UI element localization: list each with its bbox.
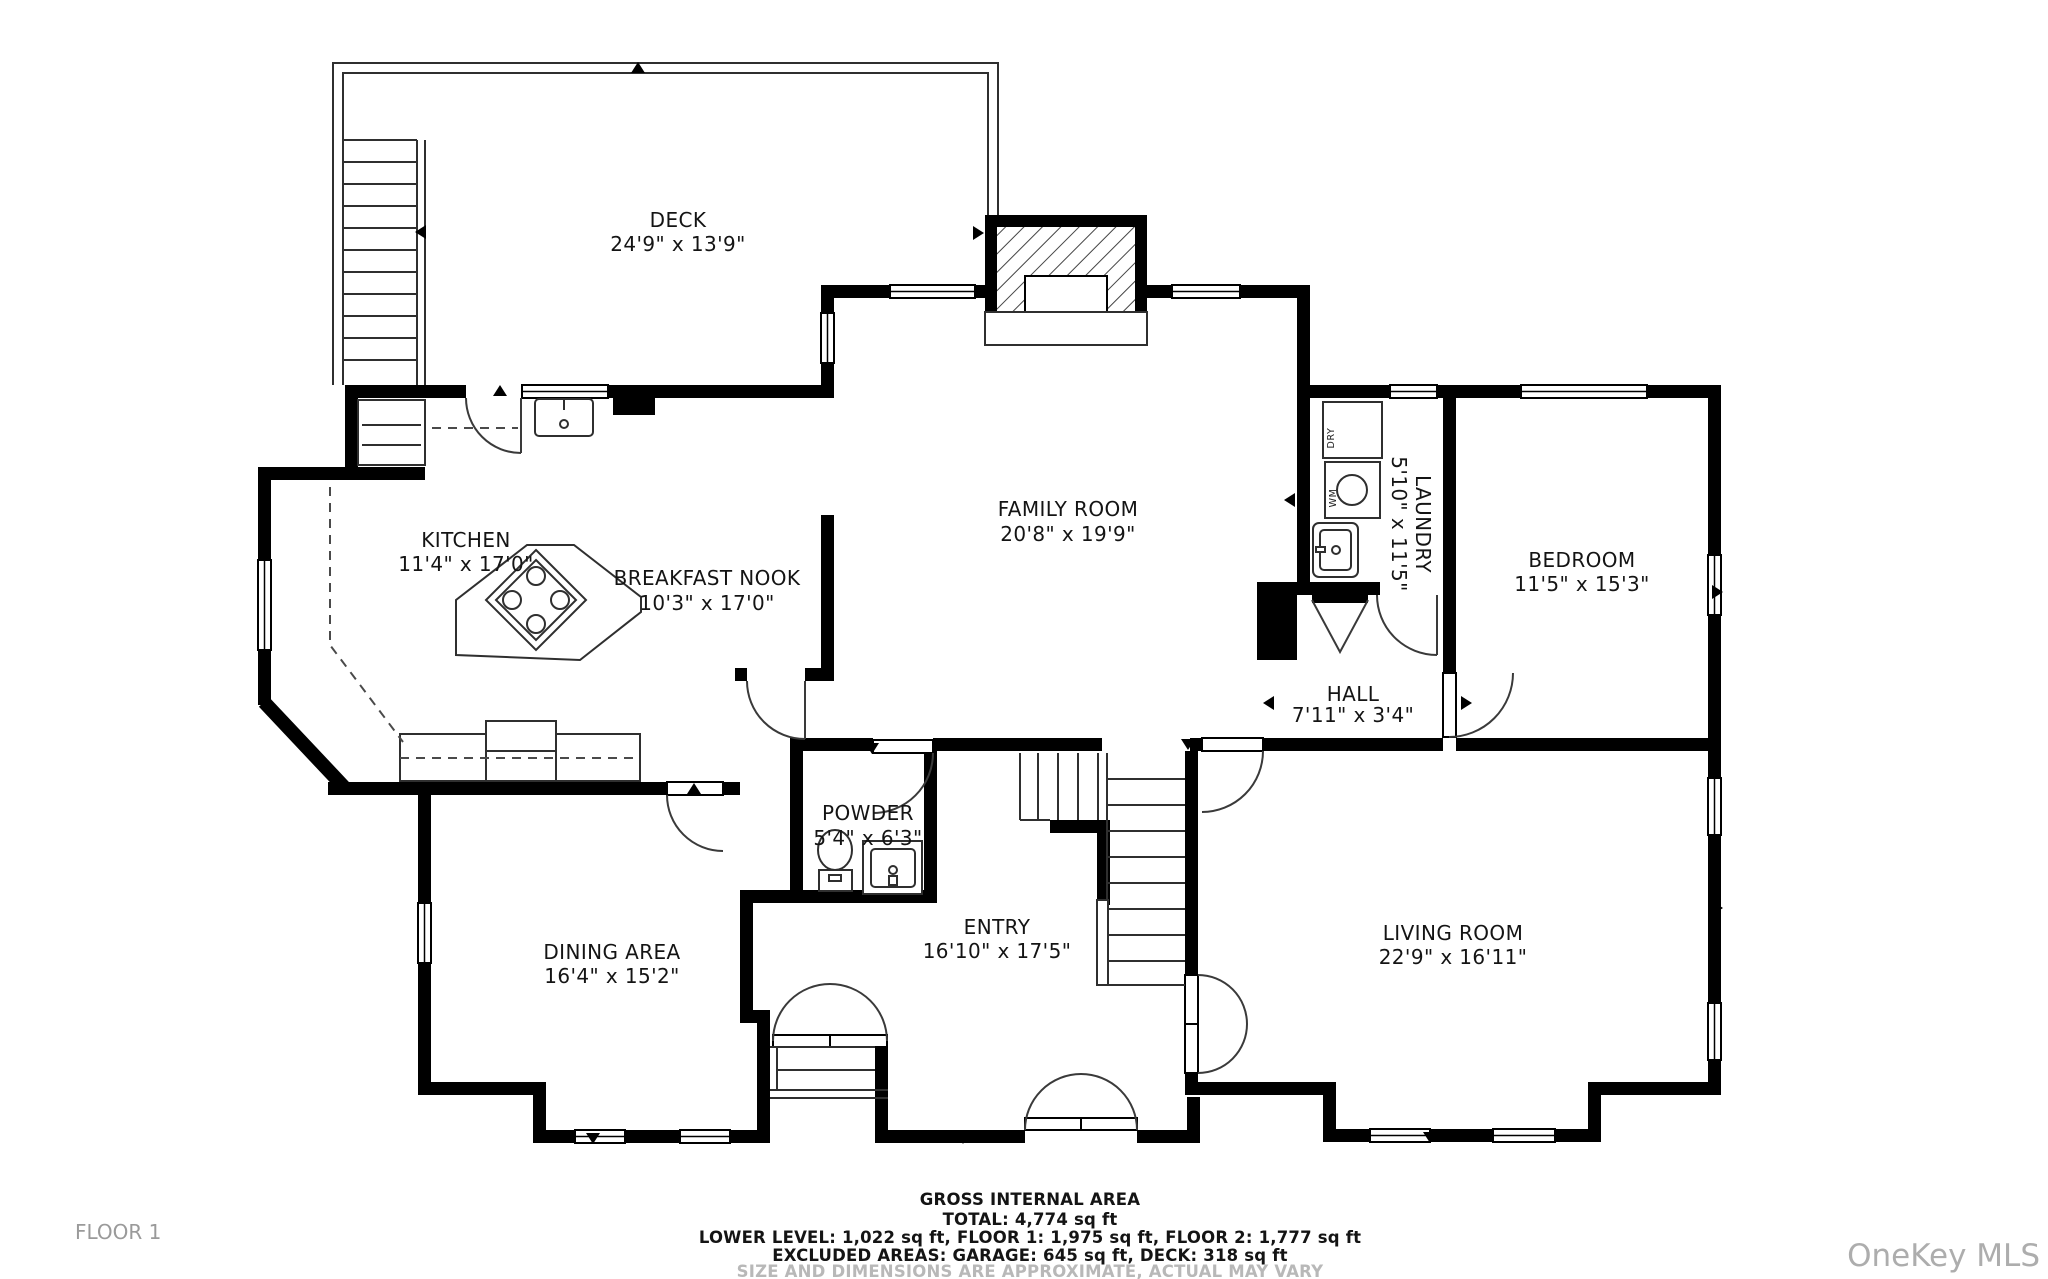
window	[258, 560, 271, 650]
window	[522, 385, 608, 398]
room-dims-entry: 16'10" x 17'5"	[923, 939, 1072, 963]
window	[575, 1130, 625, 1143]
room-label-entry: ENTRY	[964, 915, 1031, 939]
room-label-family-room: FAMILY ROOM	[998, 497, 1139, 521]
room-label-laundry: LAUNDRY	[1411, 475, 1435, 573]
burner	[503, 591, 521, 609]
laundry-fixtures: DRY WM	[1313, 402, 1382, 577]
firebox	[1025, 276, 1107, 312]
floor-plan-canvas: DRY WM	[0, 0, 2048, 1279]
laundry-sink	[1313, 523, 1358, 577]
room-label-laundry-group: LAUNDRY 5'10" x 11'5"	[1387, 456, 1435, 592]
window	[1708, 555, 1721, 615]
room-dims-deck: 24'9" x 13'9"	[610, 232, 746, 256]
front-porch	[770, 1047, 888, 1098]
room-dims-kitchen: 11'4" x 17'0"	[398, 552, 534, 576]
windows	[258, 285, 1721, 1143]
room-dims-breakfast-nook: 10'3" x 17'0"	[639, 591, 775, 615]
walls	[258, 285, 1721, 1143]
room-label-living-room: LIVING ROOM	[1383, 921, 1523, 945]
kitchen-angled-wall	[264, 702, 345, 788]
window	[821, 313, 834, 363]
room-dims-dining-area: 16'4" x 15'2"	[544, 964, 680, 988]
room-dims-powder: 5'4" x 6'3"	[813, 826, 922, 850]
hall-closet-bifold	[1312, 600, 1368, 652]
deck-staircase	[343, 140, 425, 385]
footer-levels: LOWER LEVEL: 1,022 sq ft, FLOOR 1: 1,975…	[699, 1228, 1361, 1247]
burner	[527, 615, 545, 633]
washer-label: WM	[1328, 489, 1339, 508]
room-dims-laundry: 5'10" x 11'5"	[1387, 456, 1411, 592]
footer-annotations: GROSS INTERNAL AREA TOTAL: 4,774 sq ft L…	[75, 1190, 2040, 1279]
hearth	[985, 312, 1147, 345]
watermark: OneKey MLS	[1847, 1238, 2040, 1274]
room-label-kitchen: KITCHEN	[421, 528, 510, 552]
kitchen-sink	[535, 399, 593, 436]
room-label-powder: POWDER	[822, 801, 914, 825]
fireplace	[985, 215, 1147, 345]
room-label-deck: DECK	[650, 208, 707, 232]
window	[1172, 285, 1240, 298]
burner	[551, 591, 569, 609]
room-label-breakfast-nook: BREAKFAST NOOK	[614, 566, 801, 590]
window	[680, 1130, 730, 1143]
upper-cabinets-dashed	[330, 487, 403, 742]
room-label-dining-area: DINING AREA	[543, 940, 680, 964]
window	[1370, 1129, 1430, 1142]
pantry-closet	[358, 400, 425, 465]
dryer-label: DRY	[1326, 428, 1337, 449]
room-dims-family-room: 20'8" x 19'9"	[1000, 522, 1136, 546]
window	[418, 903, 431, 963]
window	[1708, 1003, 1721, 1060]
footer-total: TOTAL: 4,774 sq ft	[943, 1210, 1118, 1229]
kitchen-fixtures	[330, 399, 641, 781]
room-dims-hall: 7'11" x 3'4"	[1292, 703, 1414, 727]
room-label-bedroom: BEDROOM	[1528, 548, 1635, 572]
floor-label: FLOOR 1	[75, 1220, 161, 1244]
window	[1521, 385, 1647, 398]
room-dims-living-room: 22'9" x 16'11"	[1379, 945, 1528, 969]
window	[1708, 778, 1721, 835]
footer-title: GROSS INTERNAL AREA	[920, 1190, 1140, 1209]
window	[890, 285, 975, 298]
room-dims-bedroom: 11'5" x 15'3"	[1514, 572, 1650, 596]
window	[1493, 1129, 1555, 1142]
footer-disclaimer: SIZE AND DIMENSIONS ARE APPROXIMATE, ACT…	[737, 1262, 1325, 1279]
window	[1390, 385, 1437, 398]
kitchen-counter	[400, 721, 640, 781]
